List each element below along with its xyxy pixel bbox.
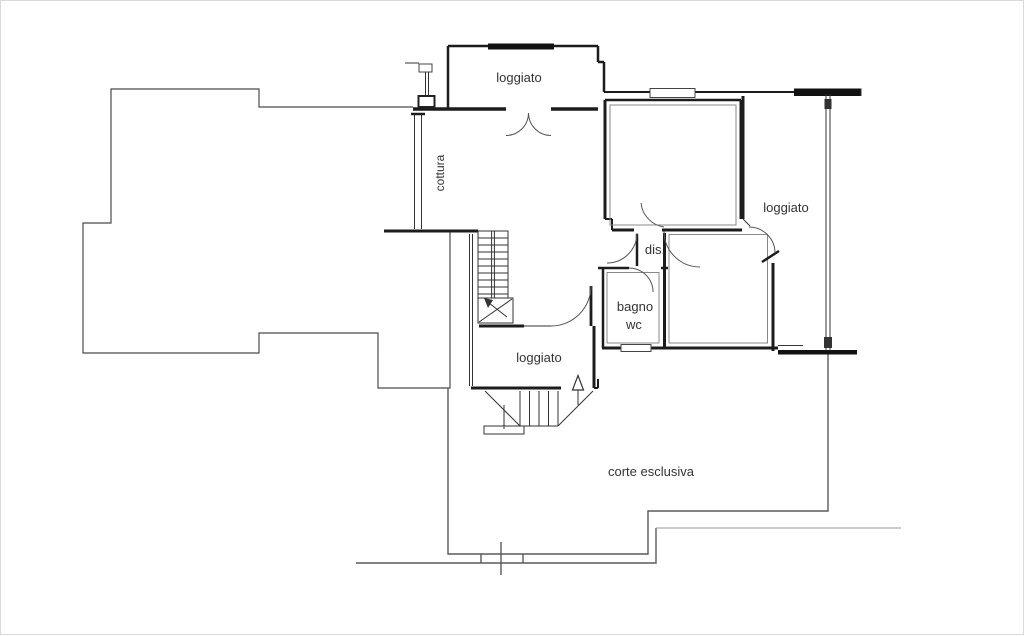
internal-staircase: [478, 231, 513, 323]
label-corte-esclusiva: corte esclusiva: [608, 464, 695, 479]
external-staircase: [484, 376, 593, 435]
label-dis: dis.: [645, 242, 665, 257]
bagno-window: [621, 345, 651, 352]
adjacent-unit-outline: [83, 89, 450, 388]
floor-plan-svg: loggiato cottura loggiato dis. bagno wc …: [1, 1, 1024, 636]
label-wc: wc: [625, 317, 642, 332]
right-loggiato-walls: [743, 94, 832, 351]
camera-room-walls: [605, 100, 742, 230]
living-room-walls: [384, 231, 478, 386]
door-swings: [506, 113, 775, 326]
bagno-walls: [598, 233, 857, 355]
label-bagno: bagno: [617, 299, 653, 314]
stair-direction-arrow: [484, 298, 493, 308]
label-loggiato-bottom: loggiato: [516, 350, 562, 365]
north-wall: [604, 89, 861, 98]
label-loggiato-right: loggiato: [763, 200, 809, 215]
column-bottom: [824, 337, 832, 348]
top-window-band: [488, 44, 554, 50]
cottura-wall: [411, 114, 425, 229]
room-labels: loggiato cottura loggiato dis. bagno wc …: [433, 70, 809, 479]
label-loggiato-top: loggiato: [496, 70, 542, 85]
entry-arrow-head: [573, 376, 584, 391]
survey-cross-mark: [481, 542, 523, 575]
label-cottura: cottura: [433, 154, 447, 191]
loggiato-door-leaf: [762, 251, 779, 262]
floor-plan-page: loggiato cottura loggiato dis. bagno wc …: [0, 0, 1024, 635]
north-window: [650, 89, 695, 98]
chimney-symbol: [405, 63, 435, 107]
column-top: [825, 99, 832, 109]
